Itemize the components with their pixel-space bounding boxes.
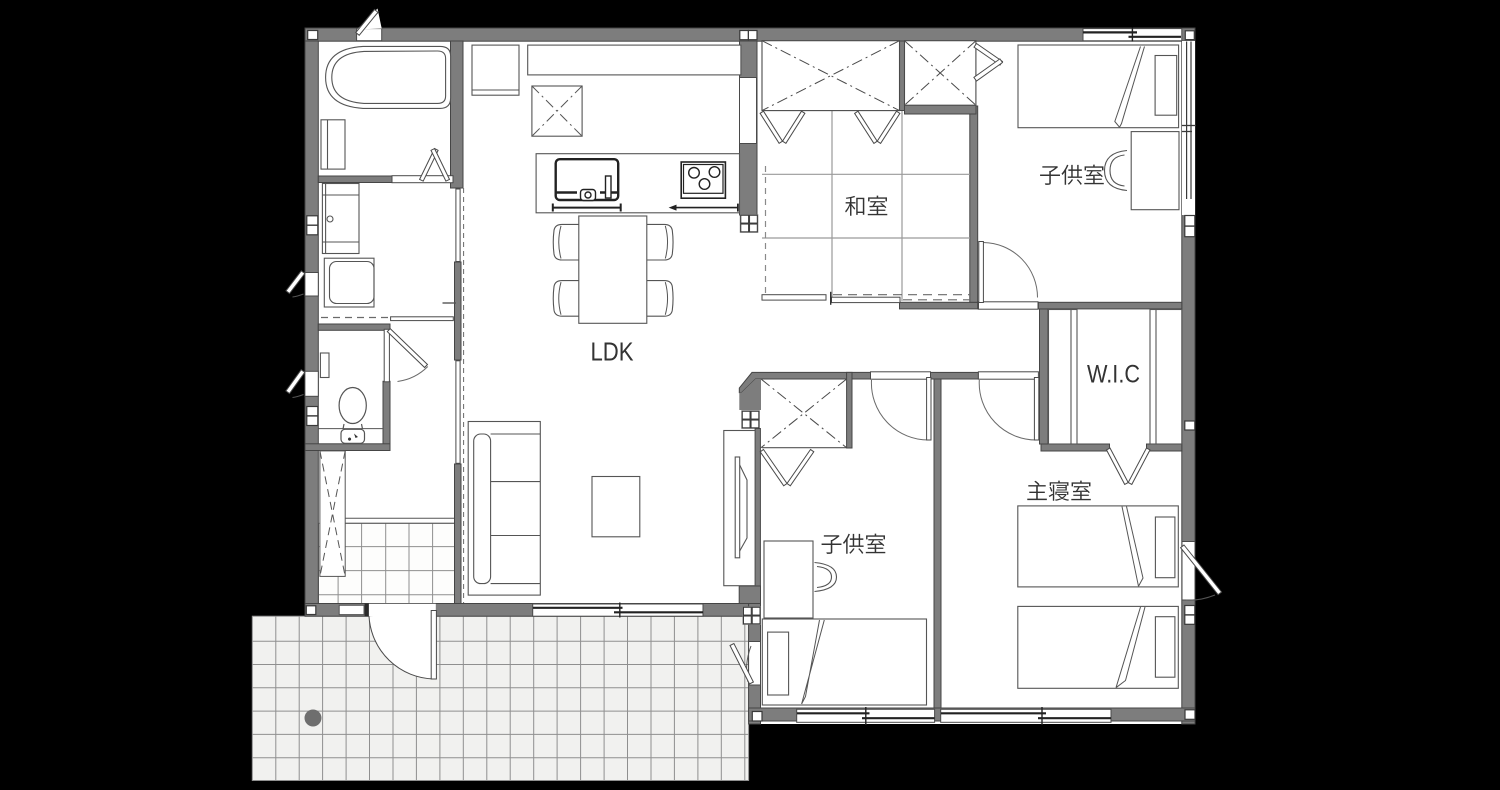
svg-text:W.I.C: W.I.C: [1087, 361, 1140, 389]
svg-text:LDK: LDK: [591, 337, 635, 367]
